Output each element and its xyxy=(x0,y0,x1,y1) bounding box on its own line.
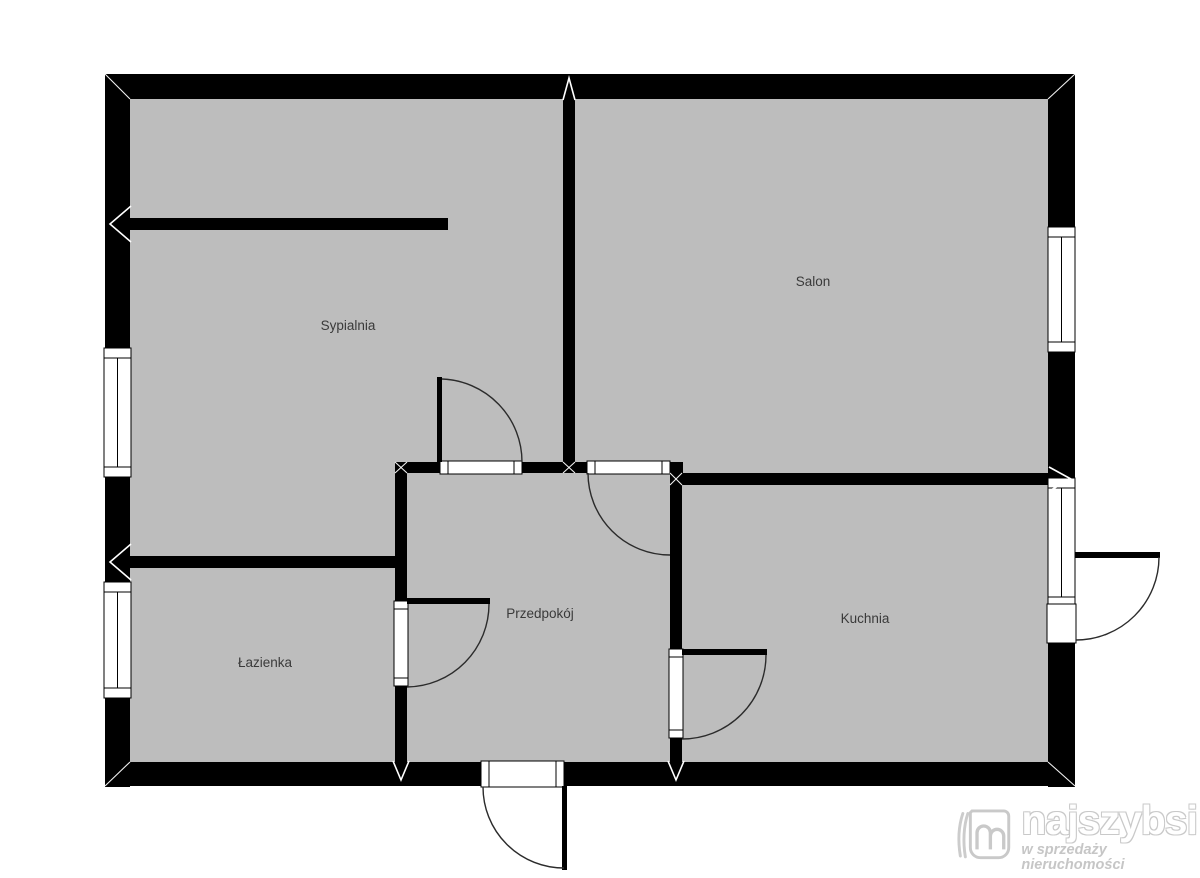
opening-bedroom-door xyxy=(440,461,522,474)
opening-exterior-right-door xyxy=(1047,604,1076,643)
room-label-hall: Przedpokój xyxy=(506,606,574,621)
opening-bathroom-door xyxy=(394,601,408,686)
leaf-bedroom-door xyxy=(437,377,442,462)
opening-living-hall-door xyxy=(587,461,670,474)
opening-front-door xyxy=(481,761,564,787)
window-bathroom-left xyxy=(104,582,131,698)
room-label-kitchen: Kuchnia xyxy=(841,611,890,626)
leaf-bathroom-door xyxy=(407,598,490,604)
room-label-living: Salon xyxy=(796,274,831,289)
window-bedroom-left xyxy=(104,348,131,477)
wall-outer-top xyxy=(105,74,1075,99)
wall-outer-bottom xyxy=(105,762,1075,786)
logo-tagline: w sprzedaży nieruchomości xyxy=(1021,843,1197,872)
najszybsi-watermark: najszybsi w sprzedaży nieruchomości xyxy=(952,798,1197,874)
window-living-right xyxy=(1048,227,1075,352)
leaf-kitchen-door xyxy=(682,649,767,655)
leaf-front-door xyxy=(562,786,567,870)
logo-brand: najszybsi xyxy=(1021,800,1197,841)
book-m-icon xyxy=(952,800,1015,872)
window-kitchen-right xyxy=(1048,478,1075,605)
wall-bedroom-bathroom xyxy=(105,556,407,568)
logo-text: najszybsi w sprzedaży nieruchomości xyxy=(1021,800,1197,872)
wall-bedroom-partition xyxy=(130,218,448,230)
floorplan-page: Sypialnia Salon Łazienka Przedpokój Kuch… xyxy=(0,0,1200,878)
wall-outer-right xyxy=(1048,74,1075,787)
room-label-bedroom: Sypialnia xyxy=(321,318,376,333)
floorplan-drawing: Sypialnia Salon Łazienka Przedpokój Kuch… xyxy=(0,0,1200,878)
leaf-exterior-right-door xyxy=(1075,552,1160,558)
opening-kitchen-door xyxy=(669,649,683,738)
arc-exterior-right-door xyxy=(1076,557,1159,640)
arc-front-door xyxy=(483,787,564,868)
room-label-bathroom: Łazienka xyxy=(238,655,293,670)
wall-bedroom-living xyxy=(563,99,575,473)
wall-living-kitchen xyxy=(670,473,1048,485)
